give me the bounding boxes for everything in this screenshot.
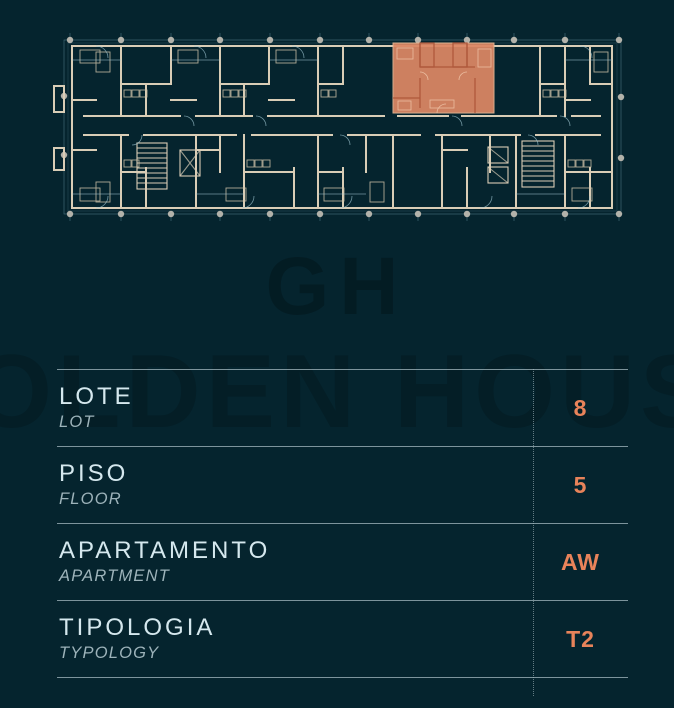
lote-value: 8 xyxy=(533,395,628,422)
lot-label: LOT xyxy=(59,413,134,432)
plan-walls xyxy=(54,46,612,208)
floor-label: FLOOR xyxy=(59,490,128,509)
value-column-divider xyxy=(533,369,534,696)
typology-label: TYPOLOGY xyxy=(59,644,215,663)
row-piso: PISO FLOOR 5 xyxy=(57,446,628,523)
unit-details-table: LOTE LOT 8 PISO FLOOR 5 APARTAMENTO APAR… xyxy=(57,369,628,678)
apartment-sheet: GH GOLDEN HOUSE xyxy=(0,0,674,708)
apartamento-label: APARTAMENTO xyxy=(59,538,270,564)
highlighted-unit-aw[interactable] xyxy=(393,43,494,113)
tipologia-value: T2 xyxy=(533,626,628,653)
row-apartamento: APARTAMENTO APARTMENT AW xyxy=(57,523,628,600)
tipologia-label: TIPOLOGIA xyxy=(59,615,215,641)
piso-value: 5 xyxy=(533,472,628,499)
floor-plan xyxy=(0,0,674,232)
watermark-gh-logo: GH xyxy=(266,246,409,328)
lote-label: LOTE xyxy=(59,384,134,410)
row-lote: LOTE LOT 8 xyxy=(57,369,628,446)
apartamento-value: AW xyxy=(533,549,628,576)
row-tipologia: TIPOLOGIA TYPOLOGY T2 xyxy=(57,600,628,677)
stairs-core xyxy=(137,141,554,189)
apartment-label: APARTMENT xyxy=(59,567,270,586)
piso-label: PISO xyxy=(59,461,128,487)
